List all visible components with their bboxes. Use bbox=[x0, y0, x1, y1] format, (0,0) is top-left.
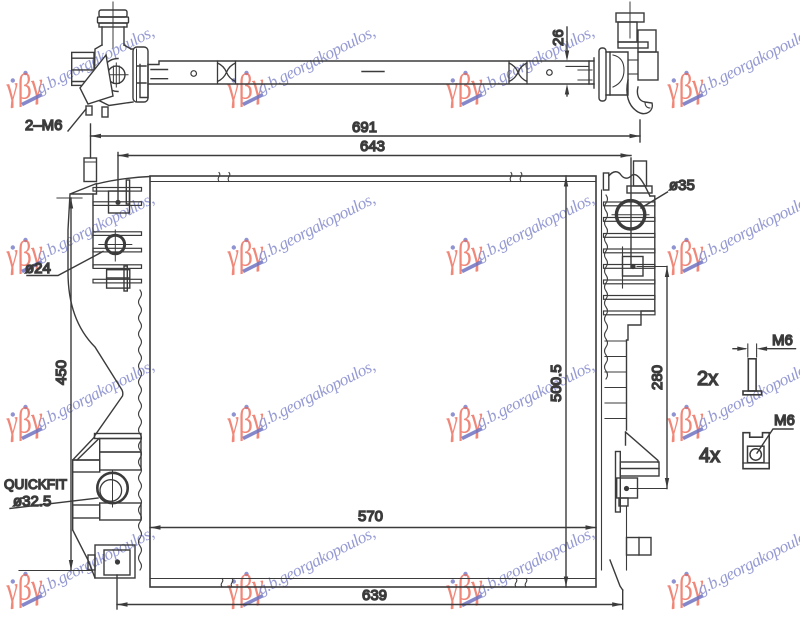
svg-text:500.5: 500.5 bbox=[548, 364, 565, 402]
svg-text:ø24: ø24 bbox=[25, 260, 51, 277]
svg-text:450: 450 bbox=[53, 360, 70, 385]
svg-text:280: 280 bbox=[649, 365, 666, 390]
svg-text:643: 643 bbox=[360, 138, 385, 155]
svg-text:M6: M6 bbox=[772, 332, 793, 349]
svg-text:QUICKFIT: QUICKFIT bbox=[4, 477, 67, 492]
svg-text:2–M6: 2–M6 bbox=[25, 117, 63, 134]
svg-text:639: 639 bbox=[362, 587, 387, 604]
svg-text:691: 691 bbox=[352, 119, 377, 136]
svg-text:ø35: ø35 bbox=[669, 177, 695, 194]
svg-text:570: 570 bbox=[358, 508, 383, 525]
svg-text:2x: 2x bbox=[697, 368, 718, 390]
svg-text:M6: M6 bbox=[774, 412, 795, 429]
svg-text:4x: 4x bbox=[699, 445, 720, 467]
svg-text:26: 26 bbox=[550, 29, 567, 46]
